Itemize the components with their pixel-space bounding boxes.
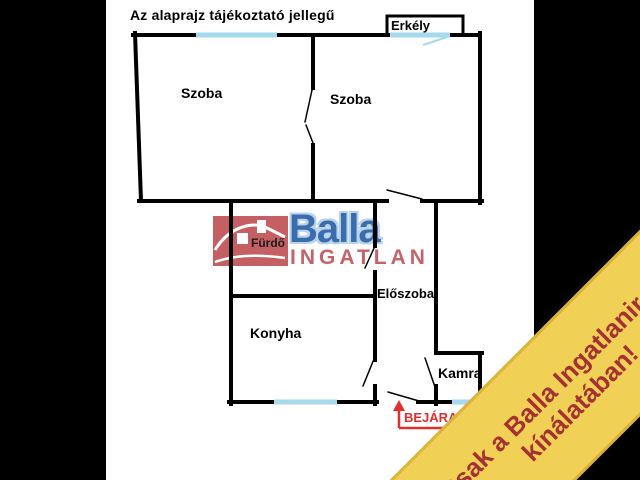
- room-label-kitchen: Konyha: [250, 326, 301, 340]
- room-label-bathroom: Fürdő: [251, 237, 285, 249]
- plan-disclaimer-title: Az alaprajz tájékoztató jellegű: [130, 8, 335, 22]
- room-label-room-2: Szoba: [330, 92, 371, 106]
- floorplan-screenshot: Balla INGATLAN: [0, 0, 640, 480]
- room-label-pantry: Kamra: [438, 366, 482, 380]
- left-matte-bar: [0, 0, 106, 480]
- room-label-hallway: Előszoba: [377, 287, 434, 300]
- door-swings: [305, 90, 435, 401]
- room-label-balcony: Erkély: [391, 19, 430, 32]
- room-label-room-1: Szoba: [181, 86, 222, 100]
